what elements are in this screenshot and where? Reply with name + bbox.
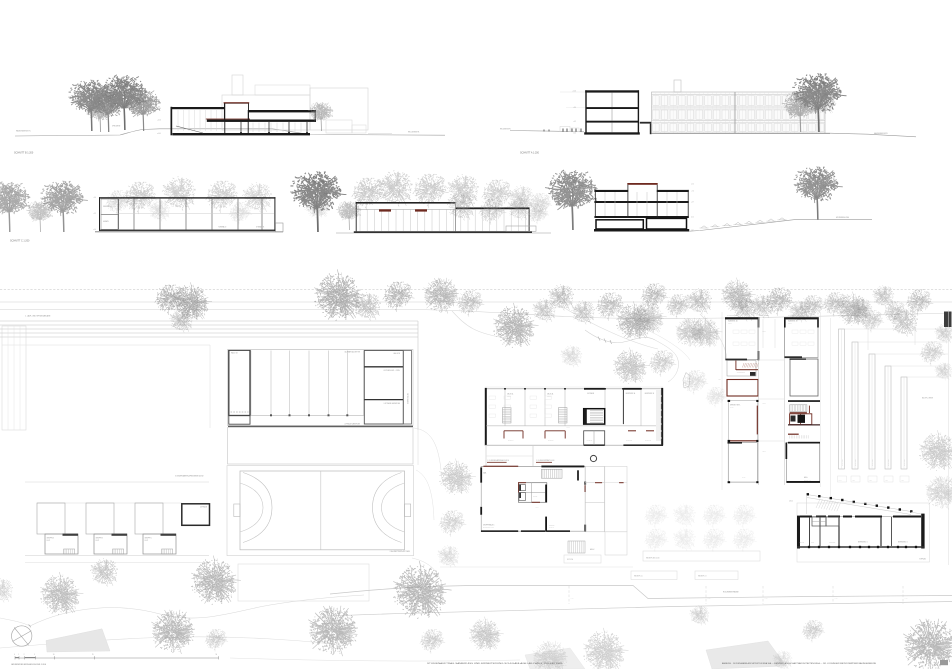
svg-text:MEHRZWECK 1: MEHRZWECK 1 — [858, 542, 868, 544]
svg-text:1. LAUF- UND SPRUNGANLAGE: 1. LAUF- UND SPRUNGANLAGE — [25, 315, 51, 318]
svg-text:445.6: 445.6 — [718, 379, 721, 381]
svg-text:GARD. 2: GARD. 2 — [549, 526, 554, 529]
svg-text:445.6: 445.6 — [571, 598, 574, 600]
svg-text:ANLIEFERUNG: ANLIEFERUNG — [737, 371, 746, 374]
svg-text:2. OG KLASSENTRAKT 446.50: 2. OG KLASSENTRAKT 446.50 — [536, 459, 555, 462]
svg-text:AULA 2: AULA 2 — [590, 548, 595, 551]
svg-text:MULTIFL. WIESE: MULTIFL. WIESE — [922, 398, 933, 400]
svg-text:2: 2 — [24, 654, 25, 656]
svg-text:6% RAMPE: 6% RAMPE — [903, 459, 906, 466]
svg-text:446.50: 446.50 — [762, 403, 766, 405]
svg-text:LUFTRAUM GARDEROBE: LUFTRAUM GARDEROBE — [344, 423, 360, 426]
svg-text:AULA: AULA — [804, 476, 808, 479]
svg-text:WASCHR.: WASCHR. — [587, 439, 594, 442]
svg-text:446.50: 446.50 — [566, 427, 570, 429]
svg-text:445.1: 445.1 — [885, 479, 888, 481]
svg-text:KLASSENZ. 1A: KLASSENZ. 1A — [728, 320, 738, 323]
svg-text:BIOTOP A: BIOTOP A — [567, 558, 573, 561]
svg-text:445.1: 445.1 — [852, 479, 855, 481]
svg-text:72 M2: 72 M2 — [728, 323, 732, 325]
svg-text:LUFTRAUM: LUFTRAUM — [200, 506, 207, 509]
svg-text:WC D: WC D — [811, 542, 814, 544]
svg-text:72 M2: 72 M2 — [788, 323, 792, 325]
svg-text:±0.0: ±0.0 — [691, 217, 694, 219]
svg-text:GARD. 1B: GARD. 1B — [645, 439, 651, 442]
svg-text:GRUPPEN: GRUPPEN — [829, 542, 835, 544]
svg-text:445.1: 445.1 — [839, 479, 842, 481]
svg-text:HAMLENBERGSTR.: HAMLENBERGSTR. — [874, 132, 889, 135]
svg-text:445.1: 445.1 — [901, 479, 904, 481]
svg-text:LUFTRAUM GARDEROBE: LUFTRAUM GARDEROBE — [384, 402, 400, 405]
svg-text:PAUSENPLATZ 445.60: PAUSENPLATZ 445.60 — [646, 557, 660, 560]
svg-text:445.60: 445.60 — [535, 507, 539, 509]
svg-text:HOLLWIESSTRASSE: HOLLWIESSTRASSE — [723, 591, 739, 594]
svg-text:KÜCHE: KÜCHE — [533, 495, 537, 498]
svg-text:SCHNITT C 1:200: SCHNITT C 1:200 — [10, 240, 30, 243]
svg-text:ZELLE 2A: ZELLE 2A — [547, 393, 553, 396]
svg-text:SAAL: SAAL — [483, 472, 487, 475]
svg-text:445.1: 445.1 — [869, 479, 872, 481]
svg-text:+12.6: +12.6 — [572, 90, 576, 92]
svg-text:3. KINDERGARTEN-SPIELWIESE 600: 3. KINDERGARTEN-SPIELWIESE 600 M2 — [175, 475, 204, 478]
svg-text:SINGSAAL 1: SINGSAAL 1 — [804, 479, 811, 482]
svg-text:GRUPPENRAUM 1: GRUPPENRAUM 1 — [483, 524, 495, 527]
svg-text:+4.10: +4.10 — [157, 119, 161, 121]
svg-text:±0.00: ±0.00 — [157, 133, 161, 135]
svg-text:2. ALLWETTERPLATZ 28/45: 2. ALLWETTERPLATZ 28/45 — [390, 550, 411, 553]
svg-text:2. OG: 2. OG — [742, 477, 745, 479]
svg-text:WERKEN TEXTIL: WERKEN TEXTIL — [730, 405, 741, 407]
svg-text:+3.2: +3.2 — [93, 213, 96, 215]
svg-text:GRUPPE C: GRUPPE C — [145, 538, 152, 540]
svg-text:6% RAMPE: 6% RAMPE — [871, 459, 874, 466]
svg-text:HELLWIESSTR.: HELLWIESSTR. — [408, 132, 420, 134]
svg-text:STUDIENAUFTRAG SANIERUNG UND E: STUDIENAUFTRAG SANIERUNG UND ERWEITERUNG… — [427, 662, 563, 665]
svg-text:GRUPPENR. 1B: GRUPPENR. 1B — [645, 393, 655, 395]
svg-text:446.50: 446.50 — [762, 331, 766, 333]
svg-text:VORPLATZ: VORPLATZ — [919, 558, 926, 561]
svg-text:72 M2: 72 M2 — [507, 396, 511, 398]
svg-text:+9.60: +9.60 — [157, 103, 161, 105]
svg-text:90 M2: 90 M2 — [730, 407, 734, 409]
svg-text:GARD. 2B: GARD. 2B — [626, 439, 632, 442]
svg-text:445.6: 445.6 — [708, 598, 711, 600]
svg-text:445.6: 445.6 — [765, 598, 768, 600]
svg-text:0: 0 — [14, 654, 15, 656]
svg-text:LUFTRAUM: LUFTRAUM — [587, 392, 594, 395]
svg-text:445.10: 445.10 — [789, 501, 793, 503]
svg-text:LUFTRAUM GER. - GYMN.: LUFTRAUM GER. - GYMN. — [383, 369, 400, 372]
svg-text:5: 5 — [34, 654, 35, 656]
svg-text:6% RAMPE: 6% RAMPE — [841, 459, 844, 466]
svg-text:MEHRZWECK 2: MEHRZWECK 2 — [898, 542, 908, 544]
svg-text:+8.20: +8.20 — [157, 108, 161, 110]
svg-text:±0.0: ±0.0 — [573, 132, 576, 134]
svg-text:GRUNDRISS ERDGESCHOSS 1:200: GRUNDRISS ERDGESCHOSS 1:200 — [11, 664, 47, 666]
svg-text:GARD. 2A: GARD. 2A — [548, 439, 554, 442]
svg-text:±0.0: ±0.0 — [93, 229, 96, 231]
svg-text:6% RAMPE: 6% RAMPE — [887, 459, 890, 466]
svg-text:GERÄTE HALLEN: GERÄTE HALLEN — [407, 393, 410, 404]
svg-text:BEWEGUNG 75 M2: BEWEGUNG 75 M2 — [483, 527, 494, 529]
svg-text:HINTERBÜHLWEG: HINTERBÜHLWEG — [836, 216, 850, 219]
svg-text:ZELLE 1A: ZELLE 1A — [507, 393, 513, 396]
svg-text:LAUFBAHN ALLWETTER: LAUFBAHN ALLWETTER — [345, 351, 360, 354]
svg-text:72 M2: 72 M2 — [547, 396, 551, 398]
svg-text:445.6: 445.6 — [905, 598, 908, 600]
svg-text:6% RAMPE: 6% RAMPE — [854, 459, 857, 466]
svg-text:445.6: 445.6 — [835, 598, 838, 600]
svg-text:+7.4: +7.4 — [691, 191, 694, 193]
svg-text:SCHNITT B 1:200: SCHNITT B 1:200 — [14, 152, 34, 155]
svg-text:60 M2: 60 M2 — [145, 540, 149, 542]
svg-text:+6.4: +6.4 — [93, 197, 96, 199]
svg-text:TURNHALLE: TURNHALLE — [218, 226, 226, 229]
svg-text:AMBERG · DICKENMANN ARCHITEKTE: AMBERG · DICKENMANN ARCHITEKTEN BSA SIA … — [722, 662, 877, 665]
svg-text:HALLE 2B: HALLE 2B — [394, 352, 401, 355]
svg-text:PAUSENPL. B: PAUSENPL. B — [698, 575, 707, 578]
svg-text:1. OG KINDERGARTENHAUS 446.50: 1. OG KINDERGARTENHAUS 446.50 — [487, 459, 509, 462]
svg-text:SCHNITT A 1:200: SCHNITT A 1:200 — [520, 152, 540, 155]
svg-text:KLASSENZ. 1B: KLASSENZ. 1B — [788, 320, 798, 323]
svg-text:GARD. 1A: GARD. 1A — [508, 439, 514, 442]
svg-text:50: 50 — [216, 654, 218, 656]
svg-text:60 M2: 60 M2 — [47, 540, 51, 542]
svg-text:HAMLENBERGSTR.: HAMLENBERGSTR. — [16, 130, 31, 133]
svg-text:GERÄTE: GERÄTE — [103, 220, 109, 223]
svg-text:GRUPPENR. 1A: GRUPPENR. 1A — [626, 392, 636, 395]
svg-text:60 M2: 60 M2 — [96, 540, 100, 542]
svg-text:+8.4: +8.4 — [573, 107, 576, 109]
svg-text:1: 1 — [18, 654, 19, 656]
svg-text:HELLWIESSTR.: HELLWIESSTR. — [500, 128, 511, 130]
svg-text:PAUSENPL. A: PAUSENPL. A — [634, 575, 642, 578]
svg-text:SPIELWIESE: SPIELWIESE — [112, 126, 120, 128]
svg-text:25: 25 — [92, 654, 94, 656]
svg-text:GRUPPE: GRUPPE — [549, 525, 554, 527]
svg-text:GYMNASTIK: GYMNASTIK — [256, 226, 264, 229]
svg-text:445.10: 445.10 — [762, 451, 766, 453]
svg-text:GRUPPE A: GRUPPE A — [47, 537, 54, 540]
svg-text:+3.7: +3.7 — [691, 202, 694, 204]
svg-text:+4.2: +4.2 — [573, 121, 576, 123]
svg-text:+9.2: +9.2 — [691, 184, 694, 186]
svg-text:10: 10 — [53, 654, 55, 656]
svg-text:GRUPPE B: GRUPPE B — [96, 538, 103, 540]
svg-text:HALLE 1B: HALLE 1B — [231, 352, 238, 355]
